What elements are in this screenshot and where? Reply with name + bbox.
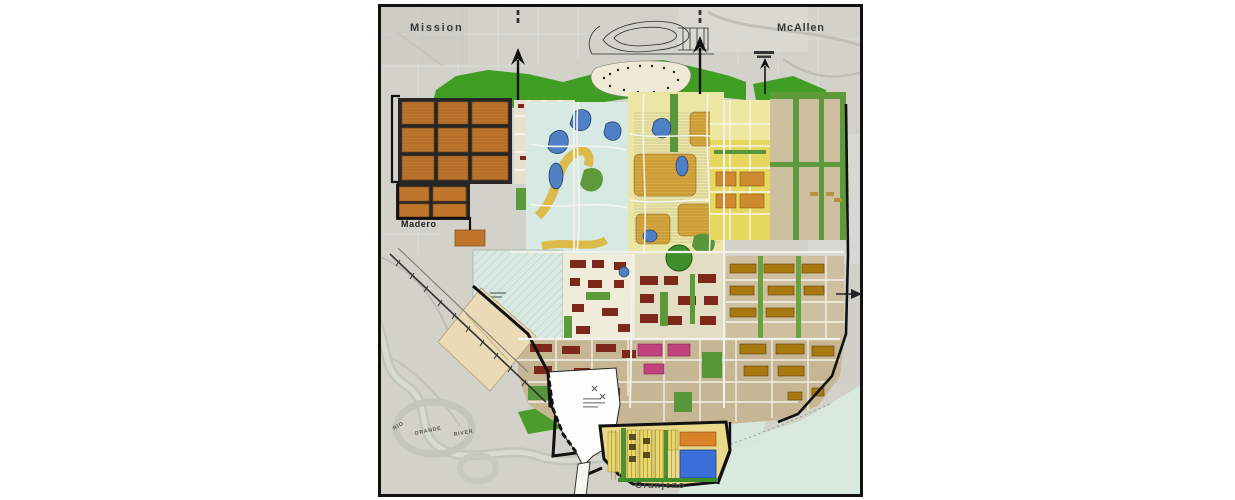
city-label-mcallen: McAllen — [777, 22, 825, 34]
yellow-grid-district — [710, 100, 770, 240]
map-canvas: Mission McAllen Madero Granjeno RIO GRAN… — [378, 4, 863, 497]
future-development-tan — [770, 92, 846, 240]
granjeno-blue-block — [680, 450, 716, 478]
city-label-mission: Mission — [410, 22, 464, 34]
granjeno-district — [600, 422, 730, 486]
granjeno-orange-block — [680, 432, 716, 446]
central-village-district — [628, 92, 724, 270]
lake-district — [526, 102, 630, 262]
master-plan-map: Mission McAllen Madero Granjeno RIO GRAN… — [378, 4, 863, 497]
campus-district — [563, 254, 635, 342]
east-industrial-district — [726, 256, 844, 340]
page-background: Mission McAllen Madero Granjeno RIO GRAN… — [0, 0, 1235, 500]
town-center-district — [635, 245, 725, 340]
town-label-madero: Madero — [401, 219, 437, 229]
village-label-granjeno: Granjeno — [635, 480, 686, 490]
